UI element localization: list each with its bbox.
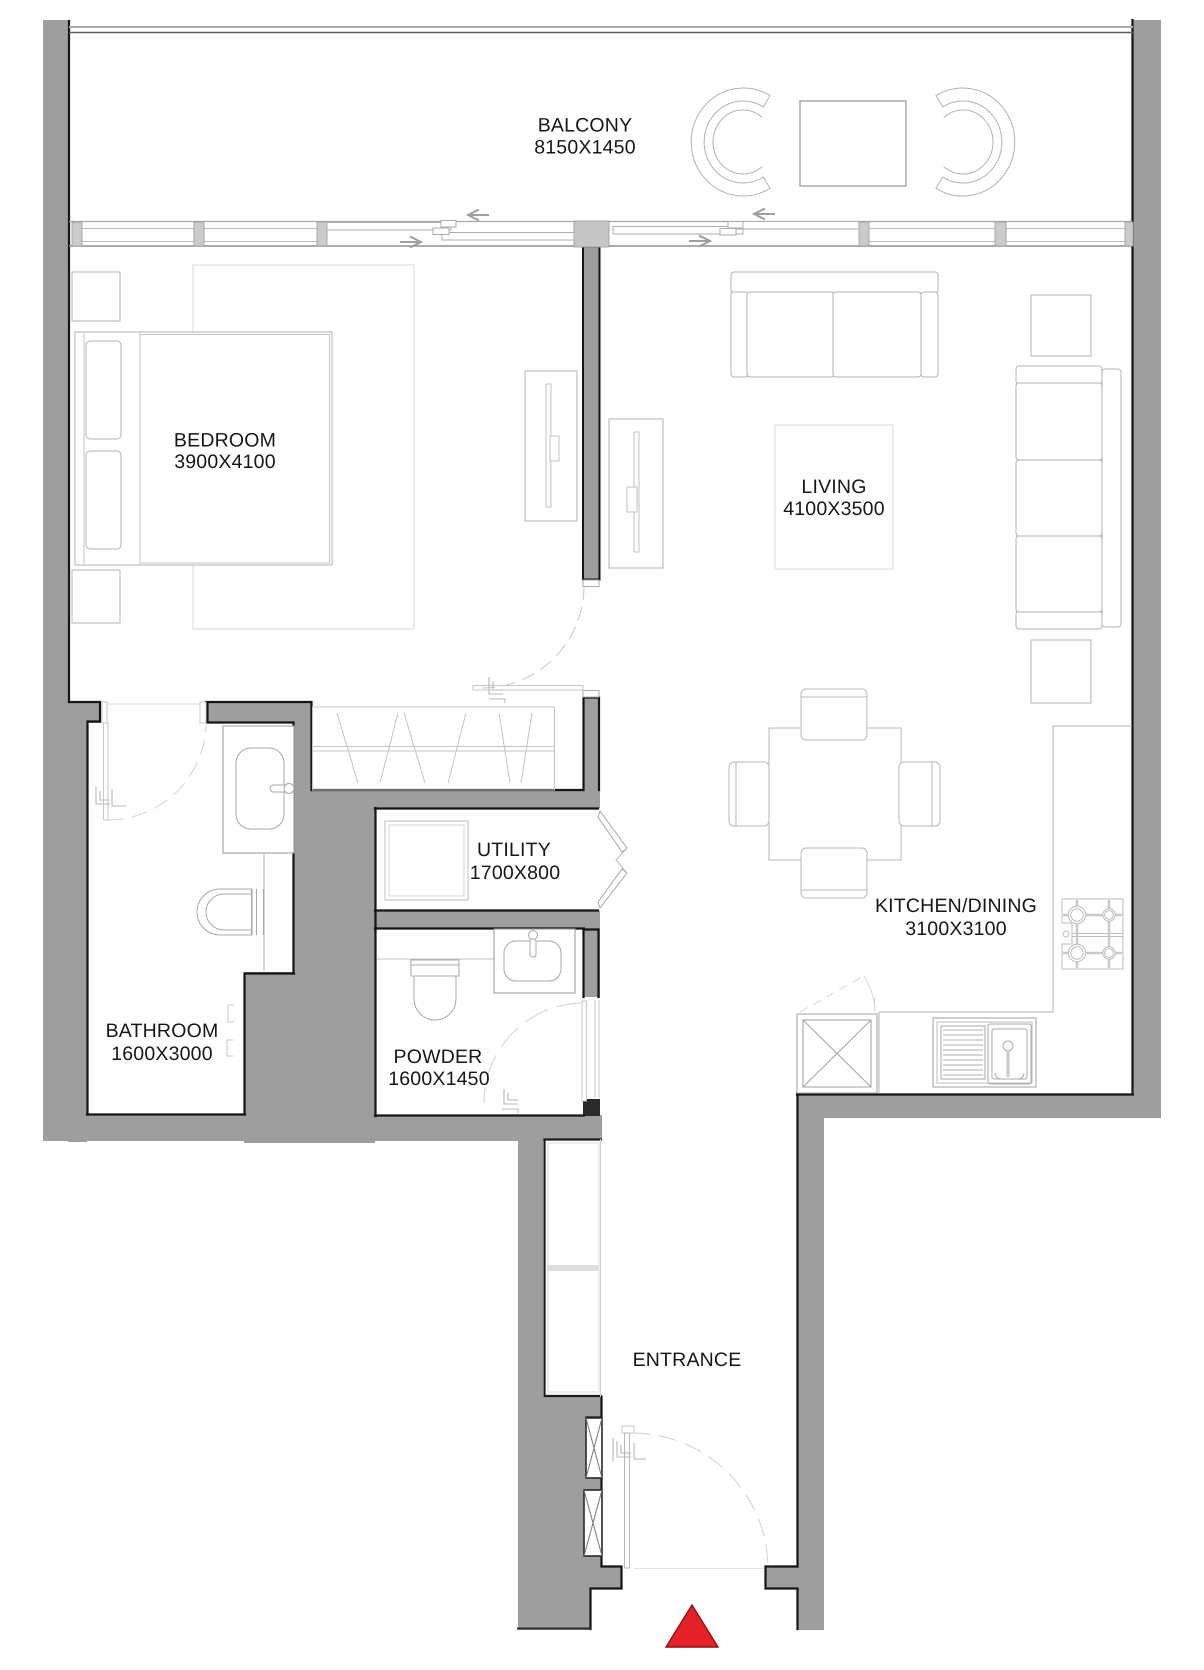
svg-text:1600X1450: 1600X1450 — [388, 1068, 490, 1090]
svg-text:LIVING: LIVING — [801, 476, 866, 498]
svg-text:1700X800: 1700X800 — [470, 862, 561, 884]
svg-text:3900X4100: 3900X4100 — [174, 451, 276, 473]
svg-text:8150X1450: 8150X1450 — [534, 137, 636, 159]
svg-text:1600X3000: 1600X3000 — [111, 1043, 213, 1065]
svg-text:UTILITY: UTILITY — [477, 839, 551, 861]
svg-text:ENTRANCE: ENTRANCE — [633, 1349, 742, 1371]
svg-text:BATHROOM: BATHROOM — [106, 1020, 219, 1042]
svg-text:POWDER: POWDER — [394, 1046, 483, 1068]
svg-text:BEDROOM: BEDROOM — [174, 430, 276, 452]
svg-text:3100X3100: 3100X3100 — [905, 918, 1007, 940]
svg-text:KITCHEN/DINING: KITCHEN/DINING — [875, 895, 1037, 917]
svg-text:4100X3500: 4100X3500 — [783, 498, 885, 520]
svg-text:BALCONY: BALCONY — [538, 115, 633, 137]
